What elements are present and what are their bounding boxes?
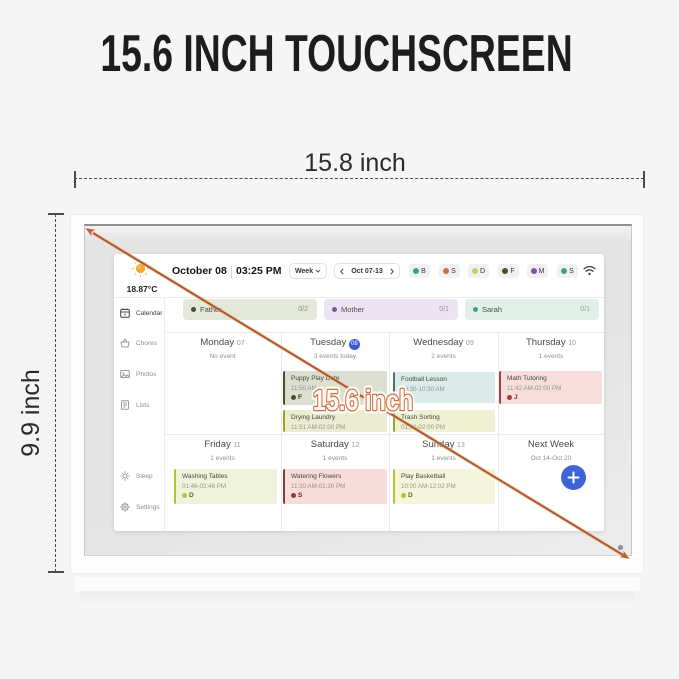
svg-text:15.6 inch: 15.6 inch [313,384,413,417]
